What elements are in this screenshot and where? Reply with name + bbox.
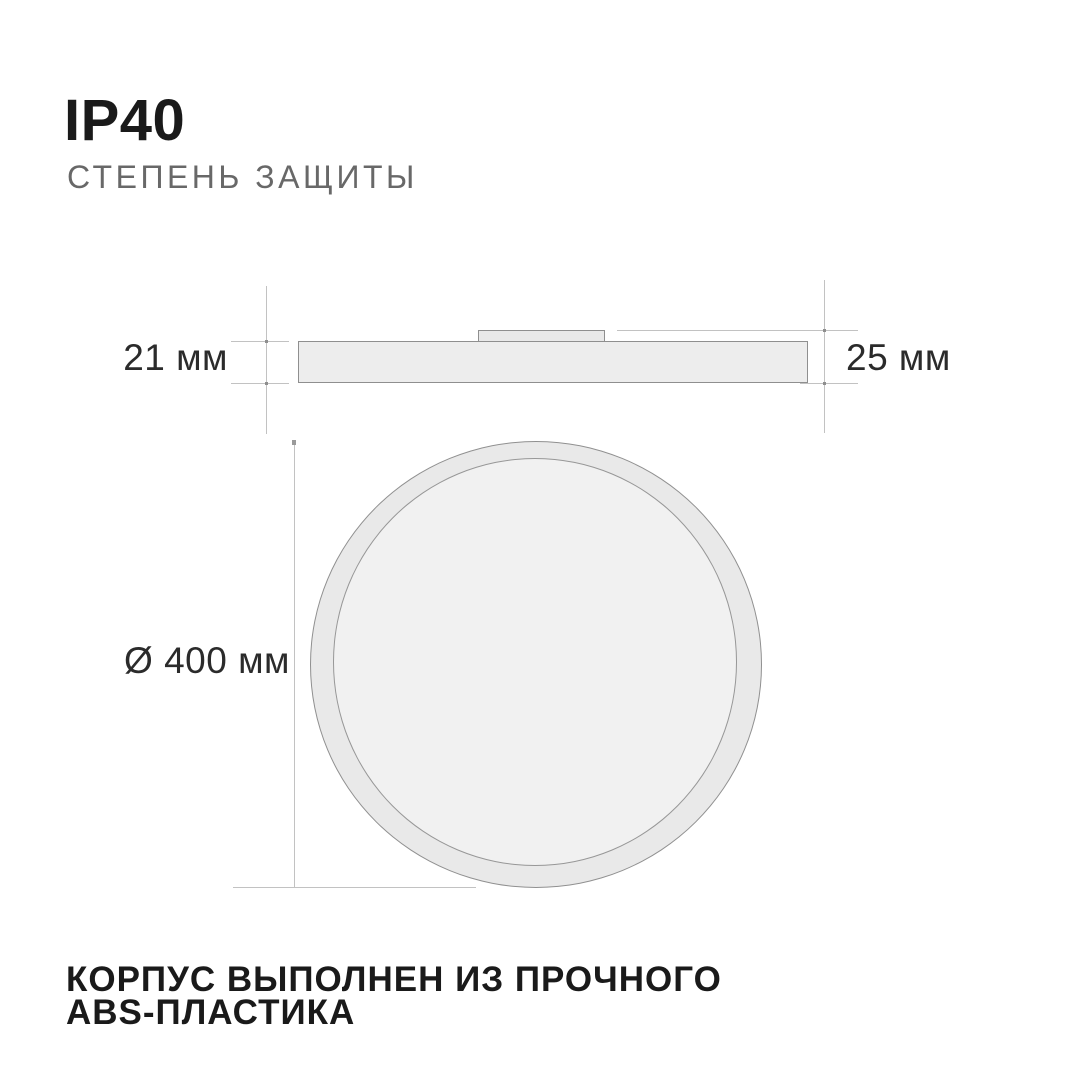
- tick-top-left: [231, 341, 289, 342]
- footer-line-1: КОРПУС ВЫПОЛНЕН ИЗ ПРОЧНОГО: [66, 963, 722, 996]
- bottom-tangent-line: [233, 887, 476, 888]
- total-height-label: 25 мм: [846, 339, 951, 376]
- mount-level-line: [617, 330, 858, 331]
- panel-side-profile-shape: [298, 341, 808, 383]
- tick-bottom-left: [231, 383, 289, 384]
- tick-bottom-right: [800, 383, 858, 384]
- extension-line-right: [824, 280, 825, 433]
- dim-cross-dot: [265, 340, 268, 343]
- dim-cross-dot: [823, 382, 826, 385]
- extension-line-left: [266, 286, 267, 434]
- panel-inner-face-shape: [333, 458, 737, 866]
- product-spec-infographic: IP40 СТЕПЕНЬ ЗАЩИТЫ 21 мм 25 мм Ø 400 мм…: [0, 0, 1080, 1080]
- footer-text: КОРПУС ВЫПОЛНЕН ИЗ ПРОЧНОГО ABS-ПЛАСТИКА: [66, 963, 722, 1029]
- page-title: IP40: [64, 91, 185, 151]
- height-label: 21 мм: [112, 339, 228, 376]
- diameter-dimension-line: [294, 441, 295, 887]
- page-subtitle: СТЕПЕНЬ ЗАЩИТЫ: [67, 160, 418, 194]
- footer-line-2: ABS-ПЛАСТИКА: [66, 996, 722, 1029]
- dim-cross-dot: [265, 382, 268, 385]
- panel-top-outline-shape: [310, 441, 762, 888]
- dimension-line-cap: [292, 440, 296, 445]
- dim-cross-dot: [823, 329, 826, 332]
- diameter-label: Ø 400 мм: [108, 642, 290, 679]
